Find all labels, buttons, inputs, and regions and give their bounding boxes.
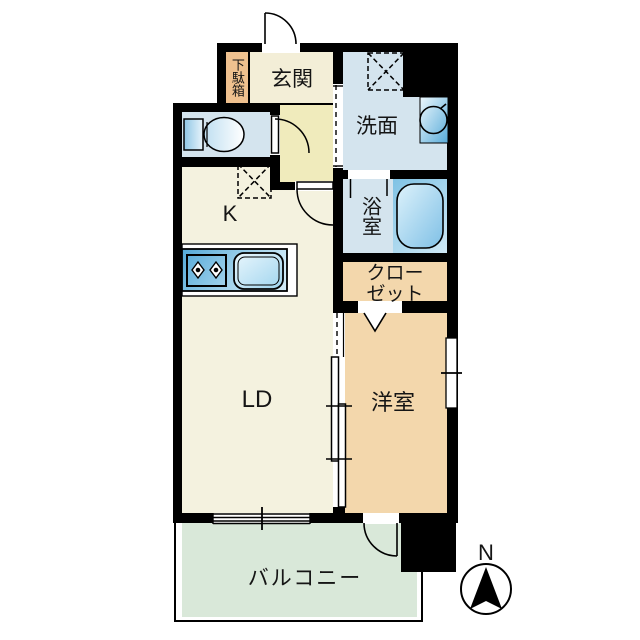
hallway	[280, 103, 333, 182]
entrance-door	[265, 13, 296, 44]
entrance-door-gap	[262, 42, 300, 53]
western-room-label: 洋室	[363, 390, 423, 416]
room-kitchen-living-dining	[182, 167, 333, 513]
closet-label: クロー ゼット	[343, 262, 447, 306]
wall-upper-horizontal	[173, 103, 280, 112]
entrance-step-line	[280, 103, 333, 105]
wall-balcony-block	[401, 513, 456, 572]
wall-toilet-bottom	[173, 157, 280, 167]
wall-topleft-vertical	[217, 43, 226, 112]
bathtub-zone	[393, 179, 447, 253]
entrance-label: 玄関	[255, 67, 329, 93]
balcony-window-gap	[213, 513, 310, 524]
wall-bathroom-bottom	[333, 253, 458, 262]
kitchen-label: K	[215, 201, 245, 227]
floor-plan: 下駄箱 玄関 洗面 浴室 クロー ゼット K LD 洋室 バルコニー N	[0, 0, 640, 640]
room-toilet	[182, 112, 270, 157]
wall-corner-mass	[403, 43, 458, 97]
shoe-cabinet-label: 下駄箱	[226, 54, 248, 101]
bathroom-door-gap	[348, 170, 390, 179]
balcony-door-gap	[363, 513, 399, 524]
hall-ld-door-gap	[295, 181, 333, 191]
compass	[461, 564, 511, 614]
compass-north-label: N	[472, 541, 500, 565]
living-dining-label: LD	[232, 386, 282, 414]
washroom-label: 洗面	[345, 114, 409, 140]
north-arrow-icon	[470, 567, 502, 609]
wall-ld-column	[333, 179, 343, 313]
washroom-sliding-door-gap	[333, 84, 343, 168]
wall-right	[447, 43, 458, 523]
bathroom-label: 浴室	[357, 186, 381, 246]
balcony-label: バルコニー	[245, 566, 365, 592]
toilet-door-gap	[270, 115, 280, 155]
wall-divider-stub	[333, 507, 345, 515]
